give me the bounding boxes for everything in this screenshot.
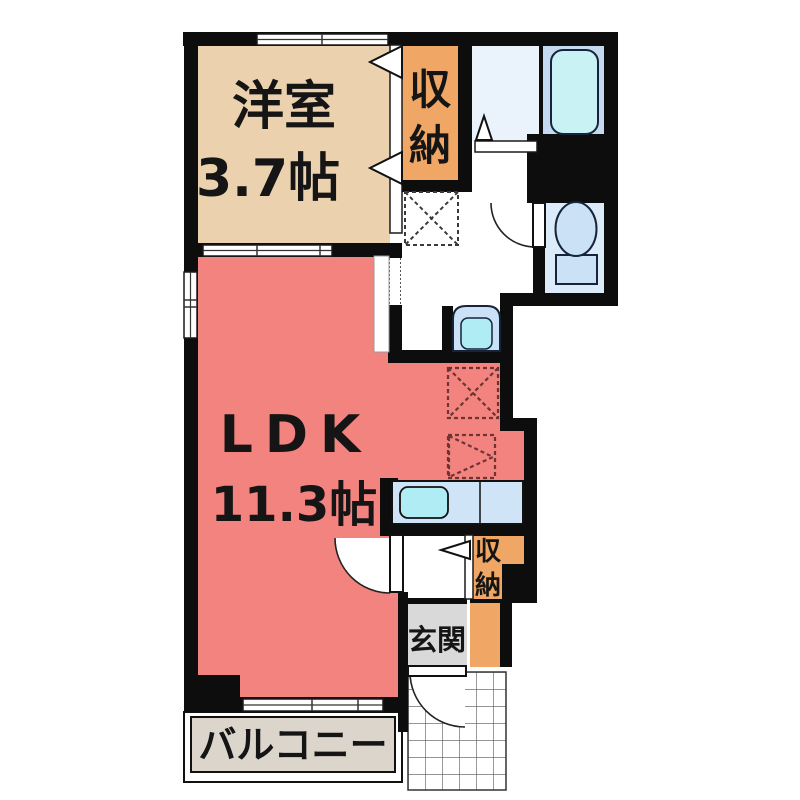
washbasin-icon (453, 306, 500, 351)
toilet-icon (556, 202, 598, 284)
floor-plan: 洋室 3.7帖 LDK 11.3帖 収 納 収 納 玄関 バルコニー (0, 0, 800, 800)
window (184, 272, 197, 338)
closet-upper-label: 収 (409, 65, 451, 114)
closet-upper-label: 納 (409, 121, 451, 170)
kitchen-counter (392, 481, 523, 524)
western-room-label: 洋室 (232, 77, 336, 137)
entrance-label: 玄関 (408, 623, 466, 657)
ldk-size: 11.3帖 (211, 477, 377, 533)
kitchen-sink-icon (400, 487, 448, 518)
closet-lower-label: 収 (475, 537, 502, 567)
ldk-label: LDK (220, 405, 373, 465)
hallway (402, 293, 500, 306)
room-western (198, 45, 390, 243)
western-room-size: 3.7帖 (196, 149, 340, 209)
hallway (472, 152, 533, 193)
shoe-cabinet (470, 603, 500, 667)
balcony-label: バルコニー (198, 723, 387, 767)
hallway (402, 306, 442, 351)
window (243, 699, 383, 711)
closet-lower-label: 納 (475, 570, 501, 601)
bathtub-icon (551, 50, 598, 134)
sliding-partition (203, 245, 332, 256)
window (257, 34, 388, 45)
